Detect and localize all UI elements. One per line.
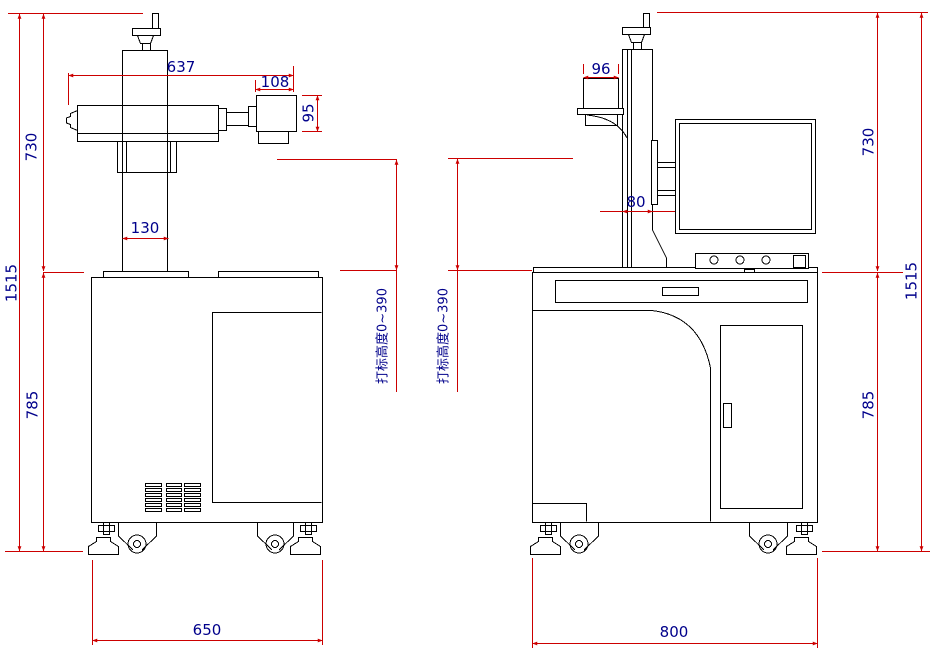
front-label-head-height: 95 bbox=[300, 103, 318, 122]
side-right-caster bbox=[750, 523, 788, 554]
side-left-leveling-foot bbox=[531, 523, 561, 555]
front-handwheel bbox=[133, 29, 161, 36]
front-handwheel-cone bbox=[138, 36, 154, 44]
front-right-leveling-foot bbox=[291, 523, 321, 555]
side-monitor bbox=[676, 120, 816, 234]
front-label-upper-height: 730 bbox=[23, 133, 41, 162]
front-laser-rail-plate bbox=[78, 134, 219, 142]
front-galvo-head bbox=[257, 96, 297, 132]
side-handwheel bbox=[623, 28, 651, 35]
front-label-head-width: 108 bbox=[261, 73, 290, 91]
front-laser-nozzle bbox=[67, 111, 78, 131]
side-galvo-head bbox=[584, 79, 619, 109]
front-beam-tube bbox=[227, 113, 249, 126]
side-monitor-mount-plate bbox=[652, 141, 658, 205]
front-label-cabinet-height: 785 bbox=[24, 391, 42, 420]
side-view-machine bbox=[531, 14, 818, 555]
front-label-column-width: 130 bbox=[131, 219, 160, 237]
side-monitor-arm-bottom bbox=[658, 191, 676, 196]
side-monitor-arm-top bbox=[658, 163, 676, 168]
side-left-caster bbox=[561, 523, 599, 554]
front-flange-left bbox=[219, 109, 227, 131]
drawing-svg: 1515 730 785 637 108 95 130 650 打标高度0~39… bbox=[0, 0, 934, 651]
side-label-total-height: 1515 bbox=[903, 262, 921, 300]
side-control-panel bbox=[696, 254, 809, 269]
technical-drawing-canvas: 1515 730 785 637 108 95 130 650 打标高度0~39… bbox=[0, 0, 934, 651]
side-galvo-plate bbox=[578, 109, 624, 115]
front-label-base-width: 650 bbox=[193, 621, 222, 639]
front-label-total-height: 1515 bbox=[3, 264, 21, 302]
front-column bbox=[123, 51, 168, 277]
front-galvo-lower-box bbox=[259, 132, 289, 144]
side-handwheel-stem bbox=[644, 14, 650, 28]
front-flange-right bbox=[249, 107, 257, 127]
front-view-machine bbox=[67, 14, 323, 555]
front-handwheel-stem bbox=[153, 14, 159, 29]
front-left-leveling-foot bbox=[89, 523, 119, 555]
side-label-column-depth: 80 bbox=[626, 193, 645, 211]
front-handwheel-neck bbox=[143, 44, 151, 51]
side-right-leveling-foot bbox=[787, 523, 817, 555]
front-laser-rail bbox=[78, 106, 219, 134]
side-label-cabinet-height: 785 bbox=[860, 391, 878, 420]
side-handwheel-cone bbox=[629, 35, 645, 43]
side-column bbox=[623, 50, 667, 272]
front-right-caster bbox=[258, 523, 294, 554]
side-label-head-depth: 96 bbox=[591, 60, 610, 78]
side-handwheel-neck bbox=[634, 43, 642, 50]
front-cabinet bbox=[92, 278, 323, 523]
front-label-marking-height: 打标高度0~390 bbox=[375, 288, 391, 384]
side-label-upper-height: 730 bbox=[860, 128, 878, 157]
side-cable-curve bbox=[587, 115, 627, 138]
front-table-pad-left bbox=[104, 272, 189, 278]
side-label-base-depth: 800 bbox=[660, 623, 689, 641]
side-galvo-bracket bbox=[586, 115, 618, 126]
front-table-pad-right bbox=[219, 272, 319, 278]
side-label-marking-height: 打标高度0~390 bbox=[436, 288, 452, 384]
front-label-assembly-length: 637 bbox=[167, 58, 196, 76]
front-left-caster bbox=[119, 523, 157, 554]
